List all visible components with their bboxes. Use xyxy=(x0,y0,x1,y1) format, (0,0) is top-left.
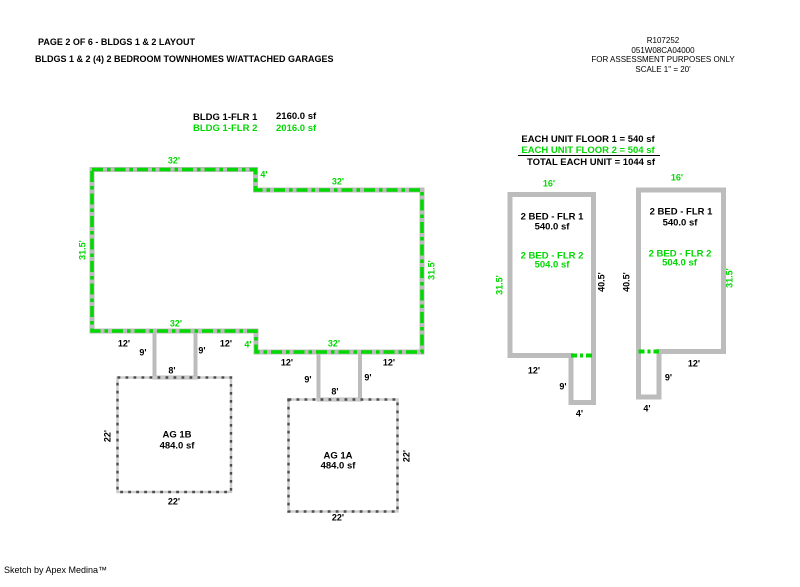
main-dim-left-side: 31.5' xyxy=(79,240,88,260)
page-subtitle: BLDGS 1 & 2 (4) 2 BEDROOM TOWNHOMES W/AT… xyxy=(35,55,334,64)
unit-left-flr1-area: 540.0 sf xyxy=(535,222,570,232)
legend-flr2-label: BLDG 1-FLR 2 xyxy=(193,124,257,134)
garage-right-dim-bottom: 22' xyxy=(332,514,344,523)
unit-left-dim-bottom: 12' xyxy=(528,367,540,376)
garage-left-dim-bottom: 22' xyxy=(168,498,180,507)
unit-left-dim-top: 16' xyxy=(543,180,555,189)
unit-right-dim-top: 16' xyxy=(671,174,683,183)
record-id: R107252 xyxy=(591,36,734,46)
scale-note: SCALE 1" = 20' xyxy=(591,65,734,75)
breezeway-right-dim-right: 12' xyxy=(383,359,395,368)
main-building-outline xyxy=(92,170,422,353)
breezeway-left-dim-right: 12' xyxy=(220,340,232,349)
unit-right-flr2-area: 504.0 sf xyxy=(662,258,697,268)
breezeway-left-dim-left-depth: 9' xyxy=(139,349,146,358)
unit-right-dim-tab-depth: 9' xyxy=(665,373,672,382)
page-title: PAGE 2 OF 6 - BLDGS 1 & 2 LAYOUT xyxy=(38,38,195,47)
garage-left-area: 484.0 sf xyxy=(160,441,195,451)
legend-flr2-area: 2016.0 sf xyxy=(276,124,316,134)
map-taxlot: 051W08CA04000 xyxy=(591,46,734,56)
unit-summary-total: TOTAL EACH UNIT = 1044 sf xyxy=(527,158,655,168)
garage-right-dim-side: 22' xyxy=(402,450,411,462)
floorplan-drawing xyxy=(0,0,800,587)
main-dim-top-right: 32' xyxy=(332,177,344,186)
garage-left-dim-side: 22' xyxy=(103,430,112,442)
breezeway-right-walls xyxy=(317,354,363,400)
legend-flr1-label: BLDG 1-FLR 1 xyxy=(193,113,257,123)
unit-left-dim-left: 31.5' xyxy=(496,275,505,295)
main-dim-bottom-step: 4' xyxy=(244,341,251,350)
unit-left-dim-tab-depth: 9' xyxy=(559,382,566,391)
breezeway-left-dim-door: 8' xyxy=(168,367,175,376)
legend-flr1-area: 2160.0 sf xyxy=(276,112,316,122)
unit-left-dim-tab-width: 4' xyxy=(576,410,583,419)
unit-right-dim-left: 40.5' xyxy=(623,272,632,292)
sketch-credit: Sketch by Apex Medina™ xyxy=(4,566,107,575)
unit-summary-floor1: EACH UNIT FLOOR 1 = 540 sf xyxy=(521,135,654,145)
unit-right-flr1-label: 2 BED - FLR 1 xyxy=(650,207,713,217)
unit-right-flr1-area: 540.0 sf xyxy=(663,218,698,228)
main-dim-top-step: 4' xyxy=(260,171,267,180)
title-block: R107252 051W08CA04000 FOR ASSESSMENT PUR… xyxy=(591,36,734,74)
breezeway-right-dim-left: 12' xyxy=(281,359,293,368)
main-dim-bottom-left: 32' xyxy=(170,320,182,329)
main-dim-right-side: 31.5' xyxy=(428,260,437,280)
unit-summary-floor2: EACH UNIT FLOOR 2 = 504 sf xyxy=(521,146,654,156)
sketch-page: PAGE 2 OF 6 - BLDGS 1 & 2 LAYOUT BLDGS 1… xyxy=(0,0,800,587)
unit-left-dim-right: 40.5' xyxy=(597,272,606,292)
garage-left-name: AG 1B xyxy=(162,430,191,440)
breezeway-right-dim-left-depth: 9' xyxy=(304,376,311,385)
breezeway-right-dim-right-depth: 9' xyxy=(364,374,371,383)
garage-right-area: 484.0 sf xyxy=(321,461,356,471)
garage-right-name: AG 1A xyxy=(323,451,352,461)
unit-left-flr1-label: 2 BED - FLR 1 xyxy=(521,212,584,222)
unit-right-dim-bottom: 12' xyxy=(688,360,700,369)
main-dim-bottom-right: 32' xyxy=(328,340,340,349)
breezeway-right-dim-door: 8' xyxy=(331,388,338,397)
purpose-note: FOR ASSESSMENT PURPOSES ONLY xyxy=(591,55,734,65)
unit-right-dim-right: 31.5' xyxy=(726,268,735,288)
unit-left-flr2-area: 504.0 sf xyxy=(535,260,570,270)
main-building-outline-floor2 xyxy=(92,170,422,353)
unit-right-dim-tab-width: 4' xyxy=(643,405,650,414)
breezeway-left-dim-left: 12' xyxy=(118,340,130,349)
breezeway-left-dim-right-depth: 9' xyxy=(198,347,205,356)
main-dim-top-left: 32' xyxy=(168,157,180,166)
